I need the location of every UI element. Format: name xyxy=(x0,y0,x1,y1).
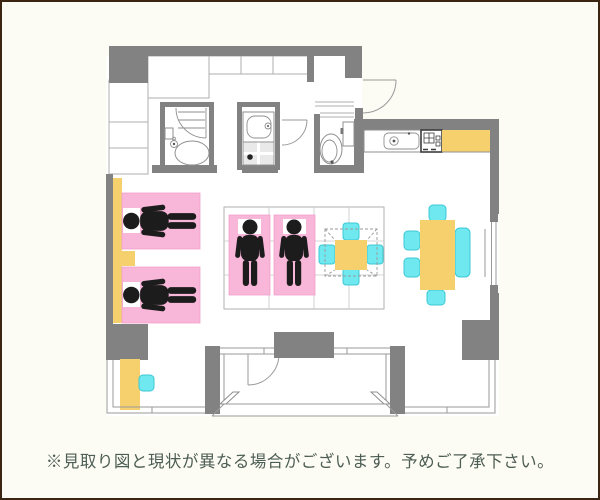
floor-cushion xyxy=(343,268,359,285)
kitchen-counter-yellow xyxy=(442,130,490,152)
entrance-door-arc xyxy=(363,80,396,113)
bathtub xyxy=(175,141,209,165)
desk xyxy=(120,359,140,410)
bath-shelf xyxy=(165,128,173,139)
dining-table xyxy=(420,220,455,290)
drain-icon xyxy=(247,154,253,160)
disclaimer-caption: ※見取り図と現状が異なる場合がございます。予めご了承下さい。 xyxy=(2,448,598,472)
bathroom xyxy=(160,102,214,170)
kotatsu-table xyxy=(335,240,367,270)
washbasin xyxy=(243,112,274,142)
floor-cushion xyxy=(367,245,383,264)
floor-cushion xyxy=(319,245,335,264)
dining-chair xyxy=(427,290,445,305)
dining-chair xyxy=(404,231,420,250)
washroom xyxy=(237,102,280,170)
air-conditioner-unit xyxy=(274,332,334,358)
dining-bench xyxy=(455,228,470,277)
wall-counter-left xyxy=(113,178,122,323)
nightstand xyxy=(120,251,135,266)
dining-chair xyxy=(404,258,420,277)
floor-cushion xyxy=(343,223,359,240)
dining-chair xyxy=(429,205,446,221)
washing-machine-pan xyxy=(243,142,274,165)
floorplan-image: ※見取り図と現状が異なる場合がございます。予めご了承下さい。 xyxy=(0,0,600,500)
gas-stove-icon xyxy=(421,130,442,152)
kitchen xyxy=(364,130,490,152)
floor-plan xyxy=(2,2,600,442)
desk-chair xyxy=(139,375,154,391)
wall-counters xyxy=(113,178,122,323)
